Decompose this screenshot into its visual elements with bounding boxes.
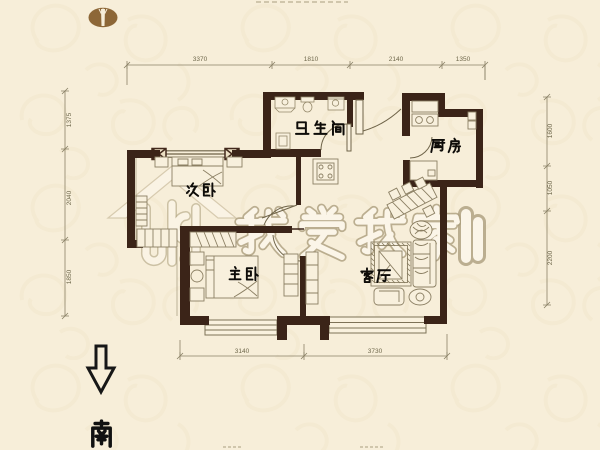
svg-text:1050: 1050: [547, 180, 554, 195]
svg-text:1350: 1350: [456, 56, 471, 63]
svg-text:3730: 3730: [368, 348, 383, 355]
svg-text:3370: 3370: [193, 56, 208, 63]
svg-text:3140: 3140: [235, 348, 250, 355]
svg-text:1600: 1600: [547, 123, 554, 138]
svg-text:2140: 2140: [389, 56, 404, 63]
svg-text:2200: 2200: [547, 250, 554, 265]
svg-text:1850: 1850: [66, 269, 73, 284]
svg-text:1375: 1375: [66, 112, 73, 127]
svg-text:2040: 2040: [66, 190, 73, 205]
svg-text:1810: 1810: [304, 56, 319, 63]
